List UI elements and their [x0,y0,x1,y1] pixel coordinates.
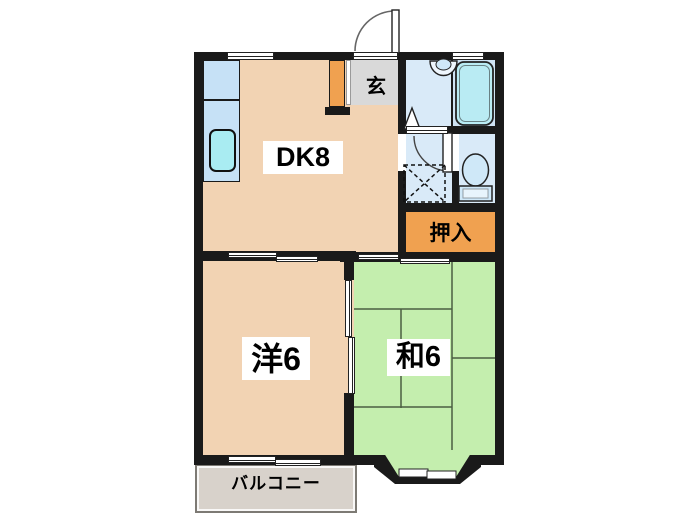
washroom-floor [406,60,452,126]
wall-toilet-left [452,171,459,204]
bay-window-glass [399,469,428,477]
bathroom-floor [451,60,495,126]
bay-window-outer [374,455,481,484]
wall-genkan-right-upper [398,52,406,134]
wall-washroom-bottom [447,126,495,134]
western-room-label: 洋6 [242,337,310,380]
wall-shoe-cabinet-stub [325,107,350,115]
room-divider-sliding-door [345,280,352,337]
balcony-label: バルコニー [200,471,352,495]
laundry-hall-floor [406,134,452,203]
wall-room-divider-bottom [344,393,354,455]
japanese-top-sliding-door [358,254,399,260]
entrance-doorway [353,52,398,60]
wall-washroom-bottom-stub [398,126,406,134]
oshiire-label: 押入 [406,220,495,246]
shoe-cabinet [329,60,345,107]
tatami-line [354,406,452,408]
japanese-room-label: 和6 [387,339,450,376]
wall-left [194,52,203,465]
bay-window-glass [427,471,456,479]
bathroom-top-window [452,52,484,60]
dk-western-sliding-door [228,252,277,258]
wall-bottom-right [473,455,504,465]
washroom-entry-opening [406,126,448,134]
counter-divider-line [203,99,240,101]
entrance-door-leaf [392,10,399,53]
dk-western-sliding-door [276,256,318,262]
entrance-door-arc [355,11,395,51]
genkan-label: 玄 [360,74,392,100]
genkan-step-line [346,60,351,105]
western-bottom-window [228,456,276,463]
tatami-line [452,357,495,359]
kitchen-sink [209,129,236,172]
western-bottom-window [275,459,321,466]
dk-room-label: DK8 [263,141,343,174]
wall-oshiire-left [398,212,406,262]
wall-service-bottom [398,203,498,212]
japanese-top-sliding-door [400,258,450,264]
tatami-line [354,308,452,310]
toilet-floor [459,134,495,203]
wall-room-divider-top [344,255,354,280]
room-divider-sliding-door [348,337,355,394]
floor-plan: DK8 玄 押入 洋6 和6 バルコニー [0,0,700,525]
wall-bath-divider [451,60,453,126]
dk-top-window [227,52,274,60]
